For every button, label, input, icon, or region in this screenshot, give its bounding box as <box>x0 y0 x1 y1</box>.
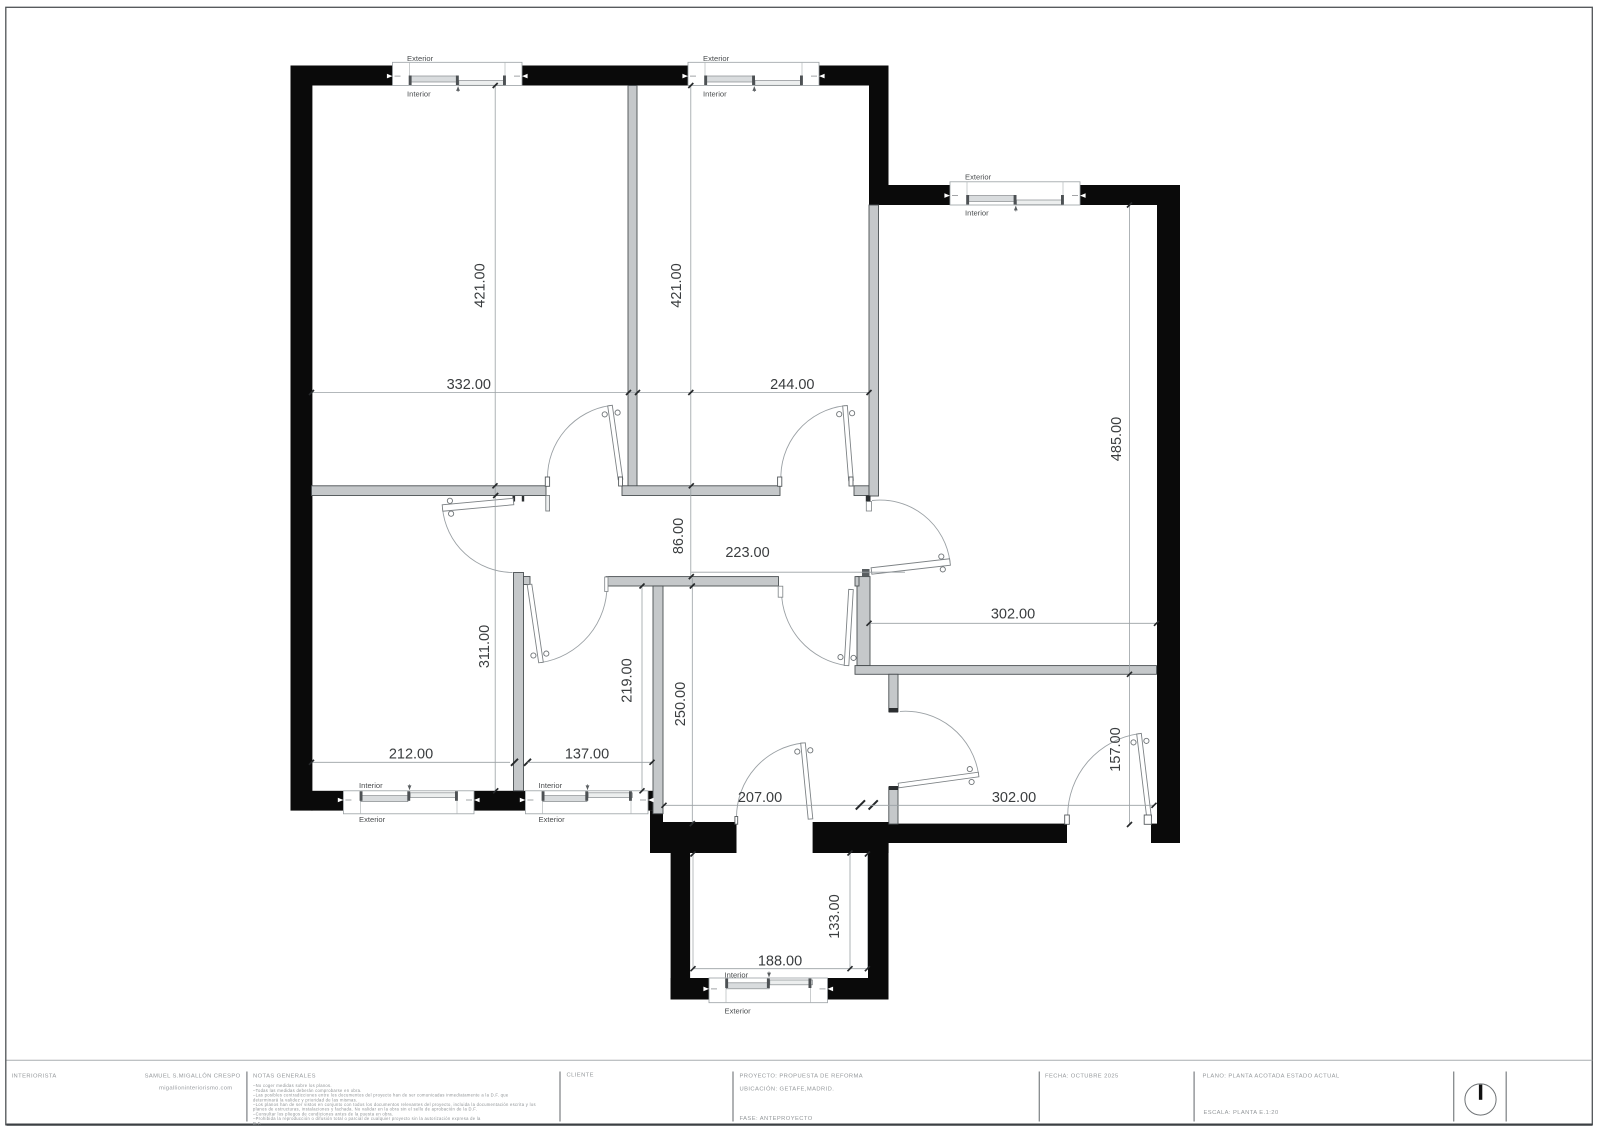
svg-text:ESCALA: PLANTA E.1:20: ESCALA: PLANTA E.1:20 <box>1204 1110 1279 1116</box>
svg-text:Interior: Interior <box>359 781 383 790</box>
svg-text:Interior: Interior <box>539 781 563 790</box>
svg-text:219.00: 219.00 <box>620 658 636 702</box>
svg-text:–Prohibida la reproducción o d: –Prohibida la reproducción o difusión to… <box>253 1116 481 1121</box>
svg-text:migallioninteriorismo.com: migallioninteriorismo.com <box>159 1085 232 1091</box>
svg-text:212.00: 212.00 <box>389 747 433 763</box>
svg-text:D.F.: D.F. <box>253 1121 262 1126</box>
svg-text:Exterior: Exterior <box>407 54 434 63</box>
svg-text:Interior: Interior <box>965 208 989 217</box>
svg-text:Interior: Interior <box>725 970 749 979</box>
svg-text:302.00: 302.00 <box>991 607 1035 623</box>
svg-text:223.00: 223.00 <box>725 545 769 561</box>
svg-text:Interior: Interior <box>703 89 727 98</box>
svg-text:Exterior: Exterior <box>539 815 566 824</box>
svg-text:133.00: 133.00 <box>827 894 843 938</box>
svg-text:311.00: 311.00 <box>477 625 493 668</box>
svg-text:CLIENTE: CLIENTE <box>567 1073 594 1079</box>
svg-text:SAMUEL S.MIGALLÓN CRESPO: SAMUEL S.MIGALLÓN CRESPO <box>145 1073 241 1080</box>
svg-text:NOTAS GENERALES: NOTAS GENERALES <box>253 1074 316 1080</box>
svg-text:302.00: 302.00 <box>992 790 1036 806</box>
svg-text:188.00: 188.00 <box>758 954 802 970</box>
svg-text:FECHA: OCTUBRE 2025: FECHA: OCTUBRE 2025 <box>1045 1074 1119 1080</box>
svg-text:PLANO: PLANTA ACOTADA ESTAD: PLANO: PLANTA ACOTADA ESTADO ACTUAL <box>1203 1074 1340 1080</box>
svg-text:INTERIORISTA: INTERIORISTA <box>12 1074 57 1080</box>
svg-text:Exterior: Exterior <box>965 173 992 182</box>
svg-text:Interior: Interior <box>407 89 431 98</box>
svg-text:207.00: 207.00 <box>738 790 782 806</box>
svg-text:PROYECTO: PROPUESTA DE REFO: PROYECTO: PROPUESTA DE REFORMA <box>740 1074 864 1080</box>
svg-text:485.00: 485.00 <box>1109 417 1125 461</box>
svg-text:421.00: 421.00 <box>669 263 685 307</box>
svg-text:FASE: ANTEPROYECTO: FASE: ANTEPROYECTO <box>740 1116 813 1122</box>
svg-text:421.00: 421.00 <box>473 263 489 307</box>
svg-text:UBICACIÓN: GETAFE,MADRID.: UBICACIÓN: GETAFE,MADRID. <box>740 1086 835 1093</box>
svg-text:86.00: 86.00 <box>671 518 687 554</box>
svg-text:157.00: 157.00 <box>1108 727 1124 771</box>
svg-text:137.00: 137.00 <box>565 747 609 763</box>
svg-text:Exterior: Exterior <box>703 54 730 63</box>
svg-text:Exterior: Exterior <box>359 815 386 824</box>
svg-text:332.00: 332.00 <box>447 377 491 393</box>
svg-text:Exterior: Exterior <box>725 1006 752 1015</box>
svg-text:244.00: 244.00 <box>770 377 814 393</box>
svg-text:250.00: 250.00 <box>673 682 689 726</box>
